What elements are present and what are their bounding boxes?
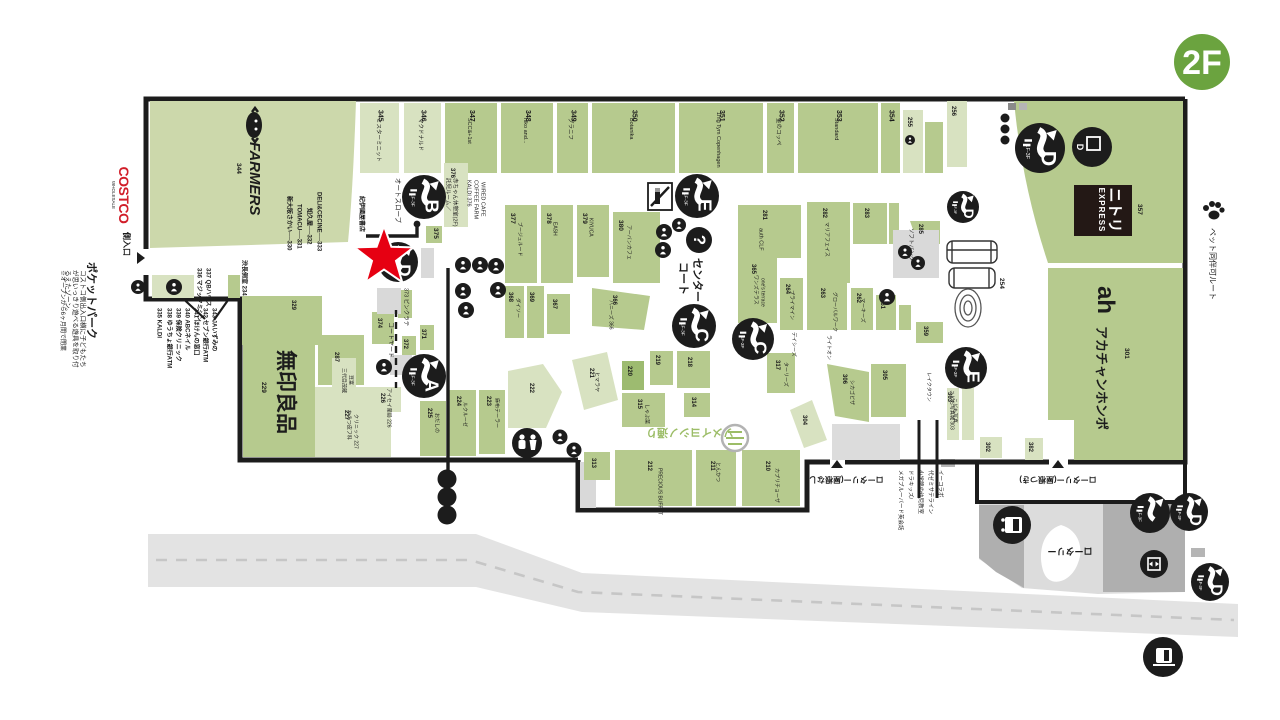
svg-text:auth CLF: auth CLF (758, 228, 764, 251)
svg-text:380: 380 (617, 220, 624, 231)
svg-text:1F-3F: 1F-3F (679, 323, 685, 336)
svg-text:ドラキッズ/: ドラキッズ/ (907, 470, 915, 500)
svg-text:1F-3F: 1F-3F (1024, 144, 1030, 159)
svg-text:1F-3F: 1F-3F (740, 336, 745, 348)
svg-text:麻布テーラー: 麻布テーラー (494, 398, 501, 428)
svg-text:210: 210 (764, 461, 770, 472)
svg-text:ah: ah (1092, 286, 1119, 314)
svg-text:343 JAいずみの: 343 JAいずみの (211, 308, 219, 351)
svg-text:368: 368 (507, 292, 513, 303)
svg-text:渋長倒室 234: 渋長倒室 234 (241, 260, 249, 296)
svg-text:?: ? (690, 235, 709, 245)
svg-text:223: 223 (485, 396, 491, 407)
svg-text:306: 306 (841, 374, 847, 385)
svg-text:ハニーズ 366: ハニーズ 366 (608, 300, 615, 330)
svg-text:225: 225 (426, 408, 432, 419)
svg-text:282: 282 (821, 208, 827, 219)
svg-text:EASH: EASH (552, 222, 558, 236)
svg-text:ロータリー(屋根なし): ロータリー(屋根なし) (806, 475, 884, 485)
svg-text:Botanika: Botanika (628, 118, 634, 140)
svg-text:D: D (1207, 584, 1225, 596)
svg-text:新大阪さかい──330: 新大阪さかい──330 (286, 196, 294, 251)
svg-text:287: 287 (333, 352, 339, 363)
svg-text:FARMERS: FARMERS (246, 142, 263, 215)
svg-text:317: 317 (774, 360, 780, 371)
svg-text:紀伊國屋書店: 紀伊國屋書店 (358, 196, 366, 232)
svg-text:E: E (694, 199, 715, 211)
svg-text:1F-3F: 1F-3F (409, 373, 415, 386)
svg-text:1F-3F: 1F-3F (1177, 509, 1182, 521)
svg-text:211: 211 (709, 461, 715, 471)
svg-text:ミスターミニット: ミスターミニット (375, 118, 383, 162)
svg-text:285: 285 (917, 224, 923, 235)
svg-text:DELI&CECINE──333: DELI&CECINE──333 (316, 192, 322, 252)
svg-text:256: 256 (950, 106, 956, 117)
svg-text:1F-3F: 1F-3F (1138, 510, 1143, 522)
svg-text:ルクルーゼ: ルクルーゼ (462, 402, 469, 427)
svg-text:1F-3F: 1F-3F (682, 193, 688, 206)
svg-text:アーバンカフェ: アーバンカフェ (626, 225, 632, 260)
svg-text:レイクタウン: レイクタウン (926, 372, 933, 402)
svg-text:1mg Tym Copenhagen: 1mg Tym Copenhagen (715, 112, 721, 168)
svg-text:グローバルワーク: グローバルワーク (832, 292, 839, 332)
svg-text:221: 221 (588, 368, 594, 379)
svg-text:ワンズテラス: ワンズテラス (753, 275, 760, 305)
svg-text:1F-3F: 1F-3F (1198, 579, 1203, 591)
svg-text:Standard: Standard (833, 118, 839, 140)
svg-text:カプリチョーザ: カプリチョーザ (774, 468, 780, 503)
svg-text:赤ちゃん休憩室(2F): 赤ちゃん休憩室(2F) (452, 178, 460, 227)
svg-text:コートヤード: コートヤード (387, 322, 394, 358)
svg-text:オートスロープ: オートスロープ (394, 178, 402, 224)
svg-text:302: 302 (984, 442, 990, 453)
svg-text:知久屋──332: 知久屋──332 (306, 208, 314, 245)
svg-text:ヒマラヤ: ヒマラヤ (594, 372, 600, 392)
svg-text:バス: バス (1023, 520, 1029, 530)
svg-text:シカゴピザ: シカゴピザ (849, 380, 856, 405)
svg-text:336 マジックミシン: 336 マジックミシン (196, 268, 204, 322)
svg-text:305: 305 (881, 370, 887, 381)
svg-text:one's terrace: one's terrace (760, 278, 766, 307)
svg-text:378: 378 (545, 213, 552, 224)
svg-text:382: 382 (1027, 442, 1033, 453)
svg-text:369: 369 (528, 292, 534, 303)
svg-text:344: 344 (235, 163, 242, 174)
svg-text:COFFEE FARM: COFFEE FARM (473, 180, 479, 220)
svg-text:イーコラボ: イーコラボ (937, 470, 945, 498)
svg-text:コストコ側出入口横に子どもたち: コストコ側出入口横に子どもたち (79, 270, 88, 368)
svg-text:314: 314 (690, 397, 696, 408)
svg-text:メガブルーバード英会話: メガブルーバード英会話 (897, 470, 905, 531)
svg-text:デイシーズ: デイシーズ (791, 332, 798, 357)
svg-text:E: E (963, 371, 983, 383)
svg-text:とんかつ: とんかつ (715, 462, 722, 482)
svg-text:222: 222 (528, 383, 534, 394)
svg-text:EXPRESS: EXPRESS (1097, 188, 1106, 233)
svg-text:224: 224 (455, 396, 461, 407)
svg-text:304: 304 (801, 415, 807, 426)
svg-text:※オープンから6ヶ月間で閉業: ※オープンから6ヶ月間で閉業 (59, 270, 67, 351)
svg-text:1F-3F: 1F-3F (953, 205, 957, 214)
svg-text:SCC&+1st: SCC&+1st (466, 118, 472, 144)
svg-text:クリニック 227: クリニック 227 (353, 414, 359, 449)
svg-text:ダイソー: ダイソー (515, 298, 522, 318)
svg-text:マリアフェイス: マリアフェイス (824, 222, 830, 257)
svg-text:代ゼミサテライン: 代ゼミサテライン (927, 470, 935, 515)
svg-text:D: D (1075, 144, 1085, 151)
svg-text:アイセイ薬局 226: アイセイ薬局 226 (386, 388, 393, 428)
svg-text:アカチャンホンポ: アカチャンホンポ (1094, 326, 1109, 430)
svg-text:263: 263 (819, 288, 825, 299)
svg-text:金のコッペ: 金のコッペ (775, 118, 783, 146)
svg-text:WIRED CAFE: WIRED CAFE (480, 182, 486, 217)
svg-text:315: 315 (636, 399, 642, 410)
svg-text:が思いっきり遊べる遊具を取り付: が思いっきり遊べる遊具を取り付 (72, 270, 81, 368)
svg-text:マクドナルド: マクドナルド (417, 118, 424, 151)
svg-text:ターリーズ: ターリーズ (783, 362, 790, 387)
svg-text:おだしの: おだしの (434, 413, 441, 433)
svg-text:374: 374 (376, 318, 382, 329)
svg-text:301: 301 (1123, 348, 1130, 359)
svg-text:373 ピンクラテ: 373 ピンクラテ (403, 288, 410, 327)
svg-text:229: 229 (260, 382, 267, 393)
svg-text:コート: コート (677, 262, 690, 295)
svg-text:三代目茂蔵: 三代目茂蔵 (341, 368, 348, 393)
svg-text:281: 281 (761, 210, 767, 221)
svg-text:371: 371 (420, 329, 426, 340)
svg-text:B: B (421, 199, 442, 213)
svg-text:218: 218 (686, 357, 692, 368)
svg-text:313: 313 (590, 458, 596, 469)
svg-text:357: 357 (1136, 204, 1143, 215)
svg-text:375: 375 (432, 228, 439, 239)
svg-text:D: D (1037, 151, 1061, 166)
svg-text:ロータリー(屋根つき): ロータリー(屋根つき) (1019, 475, 1097, 485)
svg-text:ニトリ: ニトリ (1106, 187, 1123, 232)
svg-text:かえつ皮フ科: かえつ皮フ科 (346, 410, 353, 440)
svg-text:377: 377 (509, 213, 516, 224)
svg-text:D: D (961, 209, 976, 219)
svg-text:KALDI 376: KALDI 376 (466, 180, 472, 207)
svg-text:354: 354 (888, 110, 895, 122)
svg-text:プライマイン: プライマイン (789, 290, 795, 320)
svg-text:側入口: 側入口 (122, 231, 132, 256)
svg-text:ブージュルード: ブージュルード (517, 222, 524, 257)
svg-text:ロータリー: ロータリー (1047, 546, 1092, 557)
svg-text:335 KALDI: 335 KALDI (156, 308, 162, 338)
svg-text:1F-3F: 1F-3F (953, 365, 958, 377)
svg-text:254: 254 (998, 278, 1005, 289)
svg-text:A: A (421, 378, 442, 392)
svg-text:212: 212 (646, 461, 652, 472)
svg-text:340 ABCネイル: 340 ABCネイル (184, 308, 192, 350)
svg-text:KIYUCA: KIYUCA (588, 218, 594, 237)
svg-text:342 セブン銀行ATM: 342 セブン銀行ATM (202, 308, 210, 362)
svg-text:367: 367 (551, 299, 557, 310)
svg-text:1F-3F: 1F-3F (409, 194, 415, 207)
svg-text:365: 365 (750, 264, 756, 275)
svg-text:359: 359 (922, 326, 928, 337)
svg-text:D: D (1186, 514, 1204, 526)
svg-text:グラニフ: グラニフ (567, 118, 575, 140)
svg-text:220: 220 (626, 366, 632, 377)
svg-text:219: 219 (654, 355, 660, 366)
svg-text:372: 372 (402, 339, 408, 350)
svg-text:無印良品: 無印良品 (274, 350, 298, 434)
svg-text:337 QBハウス: 337 QBハウス (205, 268, 213, 307)
svg-text:niko and...: niko and... (522, 118, 528, 144)
svg-text:COSTCO: COSTCO (116, 167, 132, 225)
svg-text:豆富: 豆富 (348, 375, 355, 385)
svg-text:C: C (691, 328, 712, 342)
svg-text:329: 329 (290, 300, 296, 311)
svg-text:283: 283 (863, 208, 869, 219)
svg-text:379: 379 (581, 213, 588, 224)
svg-text:226: 226 (379, 393, 385, 404)
svg-text:339 保険クリニック: 339 保険クリニック (175, 308, 183, 362)
svg-text:小学館の幼児教室: 小学館の幼児教室 (917, 470, 925, 515)
svg-text:ポケットパーク: ポケットパーク (85, 262, 99, 339)
svg-text:PRECIOUS BUFFET: PRECIOUS BUFFET (657, 468, 663, 515)
svg-text:TOMACU──331: TOMACU──331 (296, 204, 302, 249)
svg-text:マーキーズ: マーキーズ (860, 298, 867, 323)
svg-text:ライトオン: ライトオン (826, 335, 832, 360)
svg-text:255: 255 (906, 117, 912, 128)
svg-text:C: C (750, 341, 770, 354)
svg-text:338 ゆうちょ銀行ATM: 338 ゆうちょ銀行ATM (166, 308, 174, 368)
svg-text:こども写真城 303: こども写真城 303 (949, 390, 956, 430)
svg-text:WHOLESALE: WHOLESALE (111, 181, 116, 209)
svg-text:2F: 2F (1182, 44, 1222, 82)
svg-text:ペット同伴可ルート: ペット同伴可ルート (1208, 228, 1218, 300)
svg-text:しゃぶ菜: しゃぶ菜 (644, 404, 651, 424)
svg-text:センター: センター (691, 258, 704, 302)
